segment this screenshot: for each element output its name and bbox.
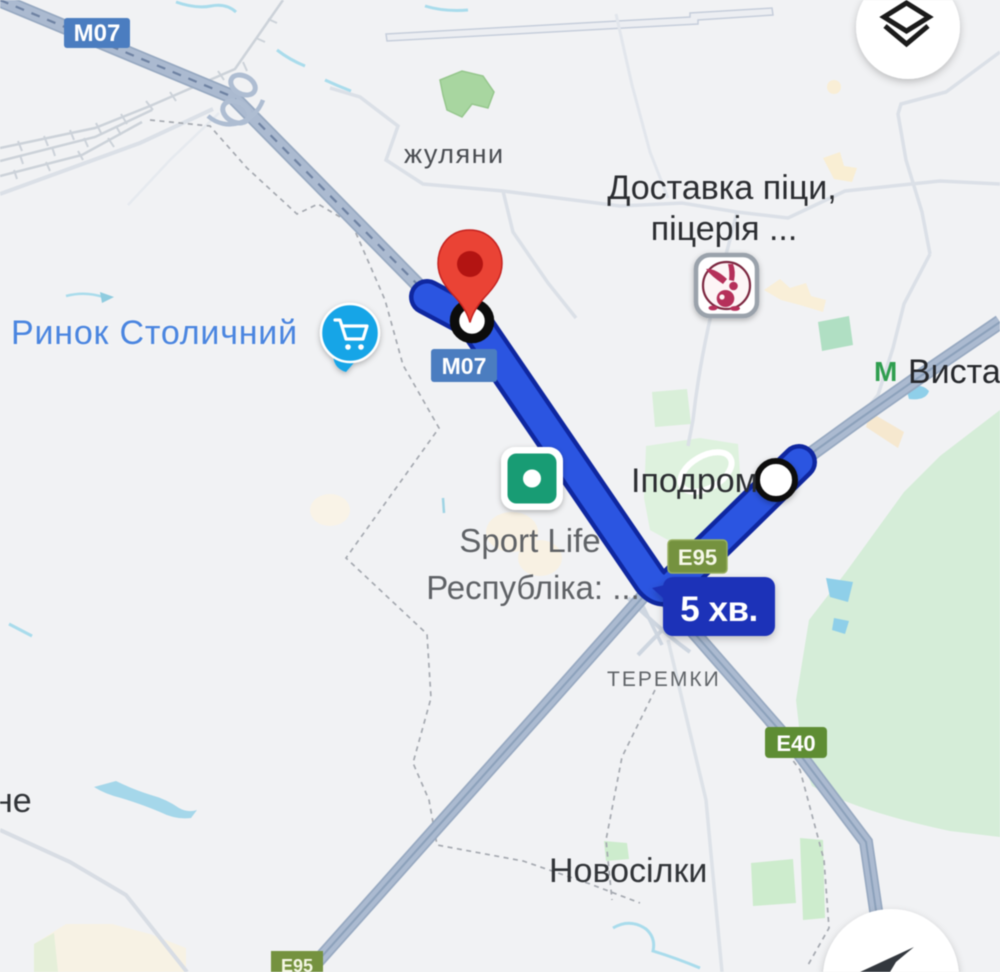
svg-text:піцерія ...: піцерія ... [651,210,798,248]
svg-text:E95: E95 [281,956,313,972]
svg-text:M07: M07 [442,353,487,379]
svg-text:не: не [0,782,32,820]
svg-text:E40: E40 [776,731,815,756]
svg-text:Новосілки: Новосілки [549,852,707,890]
svg-text:жуляни: жуляни [404,139,505,169]
svg-text:М: М [874,356,897,387]
svg-text:ТЕРЕМКИ: ТЕРЕМКИ [607,668,721,691]
svg-text:Sport Life: Sport Life [459,522,600,559]
svg-text:Доставка піци,: Доставка піци, [607,169,836,207]
svg-text:Республіка: ...: Республіка: ... [426,569,640,606]
svg-text:E95: E95 [678,545,717,570]
svg-text:5 хв.: 5 хв. [680,590,757,629]
svg-text:Виста: Виста [908,353,1000,391]
svg-text:Ринок Столичний: Ринок Столичний [11,314,298,352]
svg-text:Іподром: Іподром [631,462,758,500]
svg-text:M07: M07 [74,20,121,47]
